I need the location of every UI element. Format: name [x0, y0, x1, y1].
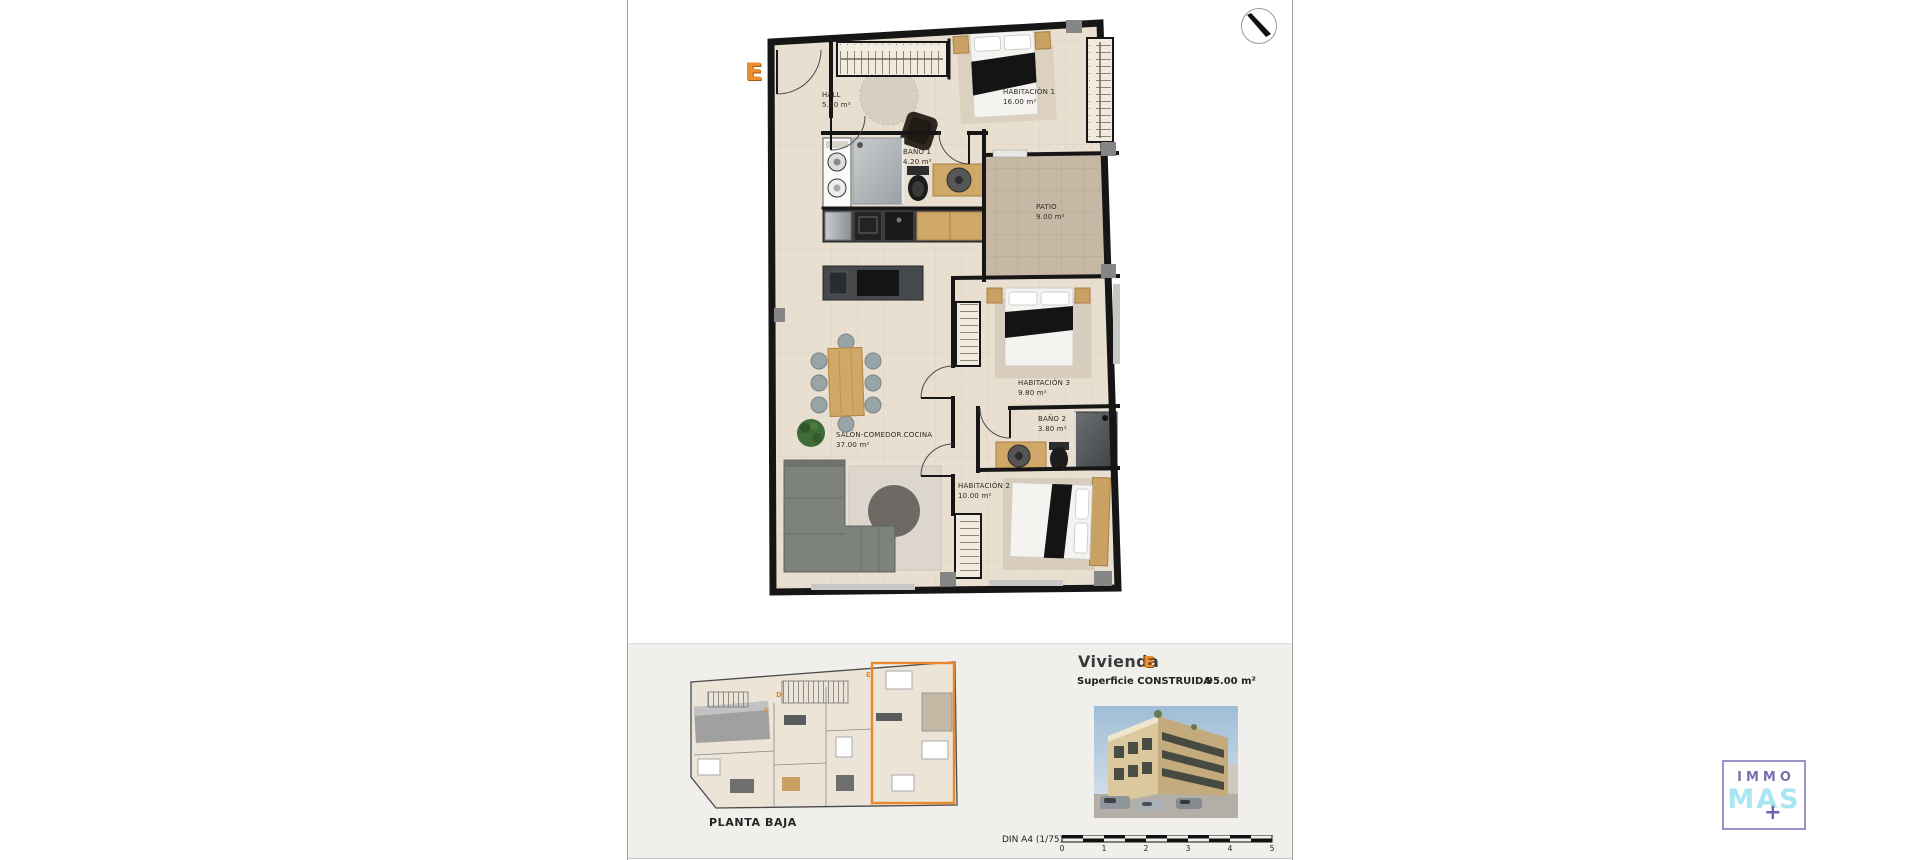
fridge: [825, 212, 851, 240]
label-bano2: BAÑO 2 3.80 m²: [1038, 415, 1067, 435]
mini-unit-letter-d: D: [776, 691, 782, 699]
scale-tick-5: 5: [1262, 844, 1282, 853]
label-patio: PATIO 9.00 m²: [1036, 203, 1065, 223]
scale-tick-1: 1: [1094, 844, 1114, 853]
bed-habitacion2: [1010, 475, 1111, 566]
hob: [857, 270, 899, 296]
label-hall: HALL 5.00 m²: [822, 91, 851, 111]
laundry-column: [823, 138, 851, 208]
immomas-logo: IMMO MAS +: [1722, 760, 1806, 830]
floor-label: PLANTA BAJA: [709, 816, 797, 829]
label-salon: SALÓN-COMEDOR.COCINA 37.00 m²: [836, 431, 932, 451]
surface-value: 95.00 m²: [1206, 676, 1256, 687]
stairs-2: [708, 692, 748, 707]
kitchen-island: [823, 266, 923, 300]
main-floor-plan: [753, 14, 1125, 606]
north-arrow-icon: [1241, 6, 1277, 42]
mini-unit-letter-f: F: [764, 707, 769, 715]
scale-tick-3: 3: [1178, 844, 1198, 853]
mini-unit-letter-e: E: [866, 671, 871, 679]
scale-tick-4: 4: [1220, 844, 1240, 853]
label-bano1: BAÑO 1 4.20 m²: [903, 148, 932, 168]
scale-tick-2: 2: [1136, 844, 1156, 853]
logo-text-immo: IMMO: [1724, 770, 1804, 785]
scale-tick-0: 0: [1052, 844, 1072, 853]
label-habitacion3: HABITACIÓN 3 9.80 m²: [1018, 379, 1070, 399]
building-photo: [1094, 706, 1238, 818]
headboard-wardrobe: [1090, 477, 1111, 566]
label-habitacion1: HABITACIÓN 1 16.00 m²: [1003, 88, 1055, 108]
label-habitacion2: HABITACIÓN 2 10.00 m²: [958, 482, 1010, 502]
mini-site-plan: D F E: [686, 655, 958, 813]
page-border-right: [1292, 0, 1293, 860]
dwelling-unit-letter: E: [1144, 653, 1154, 671]
dining-table: [828, 347, 864, 416]
logo-plus-icon: +: [1764, 800, 1782, 824]
document-page: E: [0, 0, 1920, 860]
kitchen-counter: [823, 210, 985, 242]
scale-bar: [1062, 835, 1273, 843]
surface-label: Superficie CONSTRUIDA: [1077, 676, 1211, 687]
patio-door: [993, 150, 1027, 157]
plant: [797, 419, 825, 447]
stairs: [782, 681, 848, 703]
sink: [885, 212, 913, 240]
